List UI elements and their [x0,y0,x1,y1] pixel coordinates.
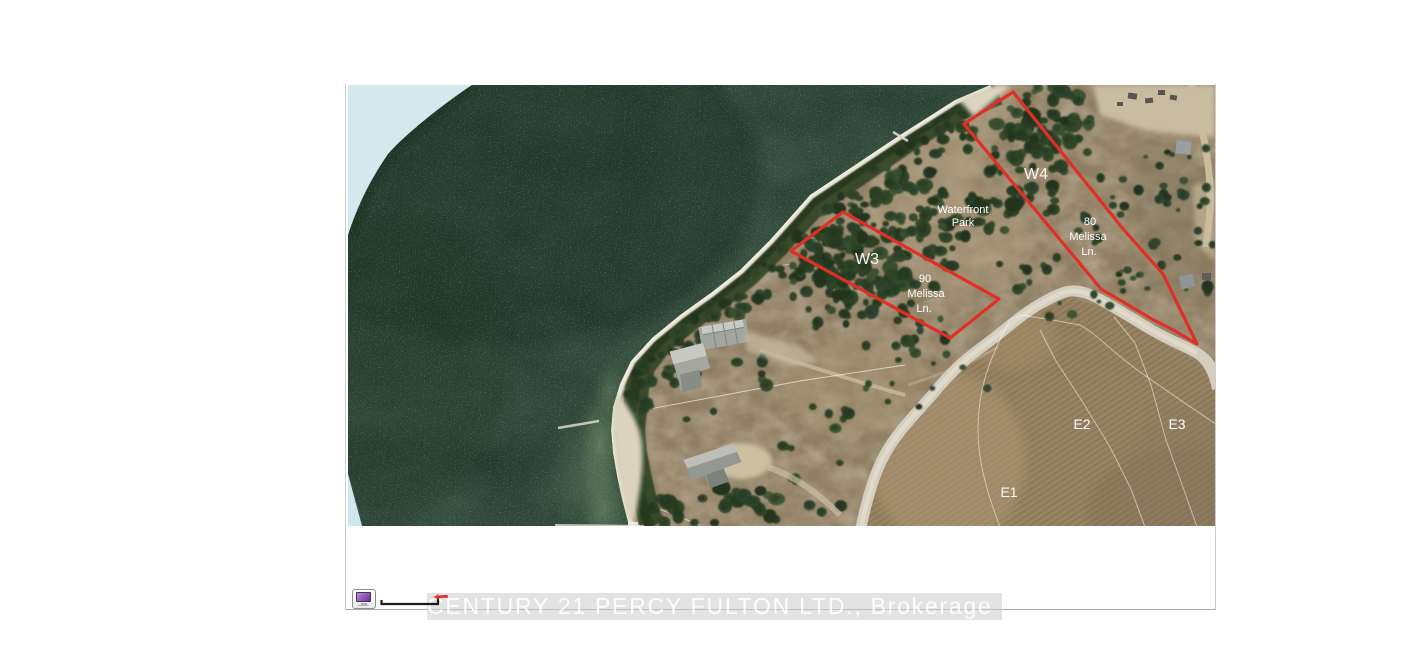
svg-text:Ln.: Ln. [916,303,931,315]
svg-text:E3: E3 [1168,416,1185,432]
svg-text:W4: W4 [1024,166,1048,183]
svg-text:E1: E1 [1000,484,1017,500]
svg-text:W3: W3 [855,251,879,268]
svg-text:90: 90 [919,273,931,285]
svg-text:80: 80 [1084,216,1096,228]
svg-text:E2: E2 [1073,416,1090,432]
svg-text:Waterfront: Waterfront [938,204,989,216]
svg-text:Ln.: Ln. [1081,246,1096,258]
svg-text:Park: Park [952,217,975,229]
svg-text:Melissa: Melissa [1069,231,1107,243]
svg-text:Melissa: Melissa [907,288,945,300]
